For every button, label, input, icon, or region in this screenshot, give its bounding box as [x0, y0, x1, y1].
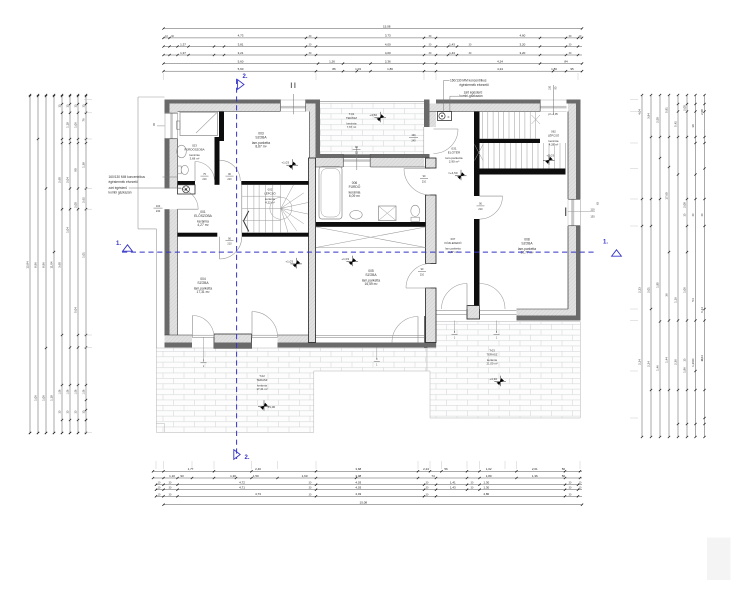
svg-text:égéstermék elvezető: égéstermék elvezető — [459, 83, 489, 87]
svg-text:4,03: 4,03 — [355, 481, 361, 485]
svg-text:1,43: 1,43 — [450, 486, 456, 490]
svg-text:7,67 m²: 7,67 m² — [347, 125, 357, 129]
svg-text:2,90 m²: 2,90 m² — [449, 160, 460, 164]
svg-text:4,00: 4,00 — [385, 42, 391, 46]
svg-text:15,08: 15,08 — [360, 501, 368, 505]
svg-text:1.: 1. — [116, 241, 121, 247]
svg-text:4,72: 4,72 — [239, 481, 245, 485]
svg-text:2.: 2. — [244, 455, 249, 461]
svg-text:6,44: 6,44 — [700, 307, 704, 313]
svg-text:1,18: 1,18 — [66, 122, 70, 128]
svg-text:5,04: 5,04 — [74, 307, 78, 313]
svg-text:1,60: 1,60 — [302, 474, 308, 478]
svg-text:TERASZ: TERASZ — [346, 116, 357, 120]
svg-text:3,84: 3,84 — [647, 113, 651, 119]
svg-text:6,09 m²: 6,09 m² — [349, 194, 361, 198]
svg-text:TERASZ: TERASZ — [256, 378, 267, 382]
svg-text:4,73: 4,73 — [238, 34, 244, 38]
svg-text:240: 240 — [156, 209, 161, 213]
svg-text:+1,03: +1,03 — [285, 259, 293, 263]
svg-text:74: 74 — [431, 474, 435, 478]
svg-text:2,00: 2,00 — [74, 202, 78, 208]
svg-text:36: 36 — [665, 293, 669, 297]
svg-text:210: 210 — [422, 181, 427, 184]
svg-text:1,80: 1,80 — [486, 474, 492, 478]
svg-text:1,04: 1,04 — [66, 227, 70, 233]
svg-text:2,01: 2,01 — [647, 287, 651, 293]
svg-text:2,36: 2,36 — [674, 359, 678, 365]
svg-text:210: 210 — [478, 208, 483, 211]
svg-text:4,24: 4,24 — [497, 67, 503, 71]
svg-text:1,26: 1,26 — [691, 361, 695, 367]
svg-text:11,04: 11,04 — [50, 261, 54, 268]
svg-text:2,00: 2,00 — [683, 105, 687, 111]
svg-text:LÉPCSŐ: LÉPCSŐ — [264, 191, 276, 196]
svg-text:2,50: 2,50 — [656, 117, 660, 123]
svg-text:1,37: 1,37 — [180, 42, 186, 46]
svg-text:1,36: 1,36 — [532, 474, 538, 478]
svg-text:2,24: 2,24 — [423, 467, 429, 471]
svg-text:17,41 m²: 17,41 m² — [256, 387, 267, 391]
svg-text:FÜRDŐ: FÜRDŐ — [349, 184, 361, 189]
svg-text:4,04: 4,04 — [638, 109, 642, 115]
svg-text:3,08: 3,08 — [355, 474, 361, 478]
svg-text:1,50: 1,50 — [253, 474, 259, 478]
svg-text:4,03: 4,03 — [355, 486, 361, 490]
svg-text:2,08: 2,08 — [700, 109, 704, 115]
svg-text:1,77: 1,77 — [188, 467, 194, 471]
svg-text:210: 210 — [227, 243, 232, 246]
svg-text:=+4,50: =+4,50 — [448, 171, 458, 175]
svg-text:+1,03: +1,03 — [281, 161, 289, 165]
svg-text:8,96: 8,96 — [34, 262, 38, 268]
svg-text:76: 76 — [82, 118, 86, 122]
svg-text:4,60: 4,60 — [519, 34, 525, 38]
svg-text:1,85: 1,85 — [656, 282, 660, 288]
svg-text:kombi-gázkazán: kombi-gázkazán — [459, 94, 482, 98]
svg-text:90: 90 — [74, 168, 78, 172]
svg-text:+4,50: +4,50 — [369, 113, 377, 117]
svg-text:1,80: 1,80 — [551, 67, 557, 71]
svg-text:10,77 m²: 10,77 m² — [520, 251, 534, 255]
svg-text:15,08: 15,08 — [383, 24, 391, 28]
svg-text:5,60: 5,60 — [238, 59, 244, 63]
svg-text:1,06: 1,06 — [683, 287, 687, 293]
svg-text:3,20: 3,20 — [519, 51, 525, 55]
svg-text:5,60: 5,60 — [238, 67, 244, 71]
svg-text:3,60: 3,60 — [58, 262, 62, 268]
svg-text:95: 95 — [570, 67, 574, 71]
svg-text:kombi gázkazán: kombi gázkazán — [109, 191, 132, 195]
svg-text:1,06: 1,06 — [42, 395, 46, 401]
svg-text:1,18: 1,18 — [50, 395, 54, 401]
svg-text:160: 160 — [411, 134, 416, 137]
svg-text:1,43: 1,43 — [449, 51, 455, 55]
svg-text:ELŐSZOBA: ELŐSZOBA — [194, 213, 213, 218]
svg-text:30: 30 — [691, 124, 695, 128]
svg-text:p=+1,05: p=+1,05 — [548, 112, 558, 116]
svg-text:2,24: 2,24 — [638, 359, 642, 365]
svg-text:4,03: 4,03 — [355, 492, 361, 496]
svg-text:1,06: 1,06 — [74, 122, 78, 128]
svg-text:1,86: 1,86 — [387, 67, 393, 71]
svg-text:2,04: 2,04 — [66, 177, 70, 183]
svg-text:210: 210 — [420, 273, 425, 276]
svg-text:1,01: 1,01 — [82, 252, 86, 258]
svg-text:4,28 m²: 4,28 m² — [549, 143, 559, 147]
svg-text:50: 50 — [562, 474, 566, 478]
svg-text:ELŐTÉR: ELŐTÉR — [448, 150, 461, 155]
svg-text:1,02: 1,02 — [486, 467, 492, 471]
svg-text:3,73: 3,73 — [385, 34, 391, 38]
svg-text:16,59 m²: 16,59 m² — [364, 282, 378, 286]
svg-text:110: 110 — [590, 208, 595, 212]
svg-text:2,08: 2,08 — [683, 202, 687, 208]
svg-text:210: 210 — [202, 178, 207, 181]
svg-text:SZOBA: SZOBA — [365, 273, 377, 277]
svg-text:3,21: 3,21 — [238, 51, 244, 55]
svg-text:5,42: 5,42 — [674, 121, 678, 127]
svg-text:2,01: 2,01 — [532, 467, 538, 471]
svg-text:93: 93 — [180, 474, 184, 478]
svg-text:1,26: 1,26 — [329, 59, 335, 63]
svg-text:1,30: 1,30 — [230, 474, 236, 478]
svg-text:1,37: 1,37 — [180, 51, 186, 55]
svg-text:160/130 MM koncentrikus: 160/130 MM koncentrikus — [109, 175, 146, 179]
svg-text:130: 130 — [590, 215, 595, 219]
svg-text:égéstermék elvezető: égéstermék elvezető — [109, 180, 139, 184]
svg-text:56: 56 — [444, 467, 448, 471]
svg-text:1,16: 1,16 — [674, 297, 678, 303]
svg-text:SZOBA: SZOBA — [521, 242, 533, 246]
svg-text:8,96: 8,96 — [42, 262, 46, 268]
svg-text:+1,03: +1,03 — [341, 257, 349, 261]
svg-text:54: 54 — [691, 298, 695, 302]
svg-text:17,31 m²: 17,31 m² — [196, 290, 210, 294]
svg-text:1,30: 1,30 — [483, 486, 489, 490]
svg-text:LÉPCSŐ: LÉPCSŐ — [548, 133, 560, 138]
svg-text:1,06: 1,06 — [34, 395, 38, 401]
svg-text:+1,03: +1,03 — [546, 153, 554, 157]
svg-text:K: K — [448, 115, 450, 119]
svg-text:4,00: 4,00 — [385, 51, 391, 55]
svg-text:1,86: 1,86 — [683, 367, 687, 373]
svg-text:86: 86 — [332, 67, 336, 71]
svg-text:SZOBA: SZOBA — [255, 136, 267, 140]
svg-text:2,24: 2,24 — [647, 361, 651, 367]
svg-text:4,22 m²: 4,22 m² — [265, 201, 275, 205]
svg-text:2,23: 2,23 — [638, 287, 642, 293]
svg-text:1,03: 1,03 — [355, 67, 361, 71]
svg-text:150: 150 — [549, 85, 552, 90]
svg-text:21,00 m²: 21,00 m² — [486, 362, 497, 366]
svg-text:1,06: 1,06 — [59, 389, 62, 394]
svg-text:1,06: 1,06 — [67, 389, 70, 394]
svg-text:1.: 1. — [603, 240, 608, 246]
svg-text:1,44: 1,44 — [665, 357, 669, 363]
svg-text:1,41: 1,41 — [450, 481, 456, 485]
svg-text:210: 210 — [227, 178, 232, 181]
svg-text:84: 84 — [564, 59, 568, 63]
svg-text:4,27 m²: 4,27 m² — [197, 223, 209, 227]
svg-text:2,60: 2,60 — [58, 177, 62, 183]
svg-text:SZOBA: SZOBA — [197, 281, 209, 285]
svg-text:2,36: 2,36 — [385, 59, 391, 63]
svg-text:1,46: 1,46 — [656, 365, 660, 371]
svg-text:4,73: 4,73 — [255, 492, 261, 496]
svg-text:FÜRDŐSZOBA: FÜRDŐSZOBA — [184, 147, 204, 152]
svg-text:50: 50 — [562, 467, 566, 471]
svg-text:KÖZLEKEDŐ: KÖZLEKEDŐ — [444, 240, 462, 245]
svg-text:1,06: 1,06 — [83, 389, 86, 394]
svg-text:5,81: 5,81 — [665, 107, 669, 113]
svg-text:+1,00: +1,00 — [268, 405, 276, 409]
svg-text:2.: 2. — [242, 74, 247, 80]
svg-text:4,24: 4,24 — [497, 59, 503, 63]
svg-text:TERASZ: TERASZ — [486, 353, 497, 357]
svg-text:2,44: 2,44 — [700, 355, 704, 361]
svg-text:1,10: 1,10 — [169, 474, 175, 478]
svg-text:2,40: 2,40 — [255, 467, 261, 471]
svg-text:4,71: 4,71 — [239, 486, 245, 490]
svg-text:12,84: 12,84 — [26, 261, 30, 269]
svg-text:2,62: 2,62 — [82, 197, 86, 203]
svg-text:1,43: 1,43 — [449, 42, 455, 46]
svg-text:+4,30: +4,30 — [489, 377, 497, 381]
svg-text:3,68: 3,68 — [355, 467, 361, 471]
svg-text:1,30: 1,30 — [483, 481, 489, 485]
svg-text:240: 240 — [411, 139, 416, 142]
svg-text:1,06: 1,06 — [75, 389, 78, 394]
svg-text:zárt égésterű: zárt égésterű — [109, 186, 128, 190]
svg-text:4,80: 4,80 — [483, 492, 489, 496]
svg-text:3,81: 3,81 — [238, 42, 244, 46]
svg-text:1,38: 1,38 — [82, 162, 86, 168]
svg-text:3,68 m²: 3,68 m² — [190, 157, 200, 161]
svg-text:8,87 m²: 8,87 m² — [255, 145, 267, 149]
svg-text:17,60: 17,60 — [665, 192, 669, 200]
svg-text:100: 100 — [156, 204, 161, 208]
svg-text:3,20: 3,20 — [519, 42, 525, 46]
